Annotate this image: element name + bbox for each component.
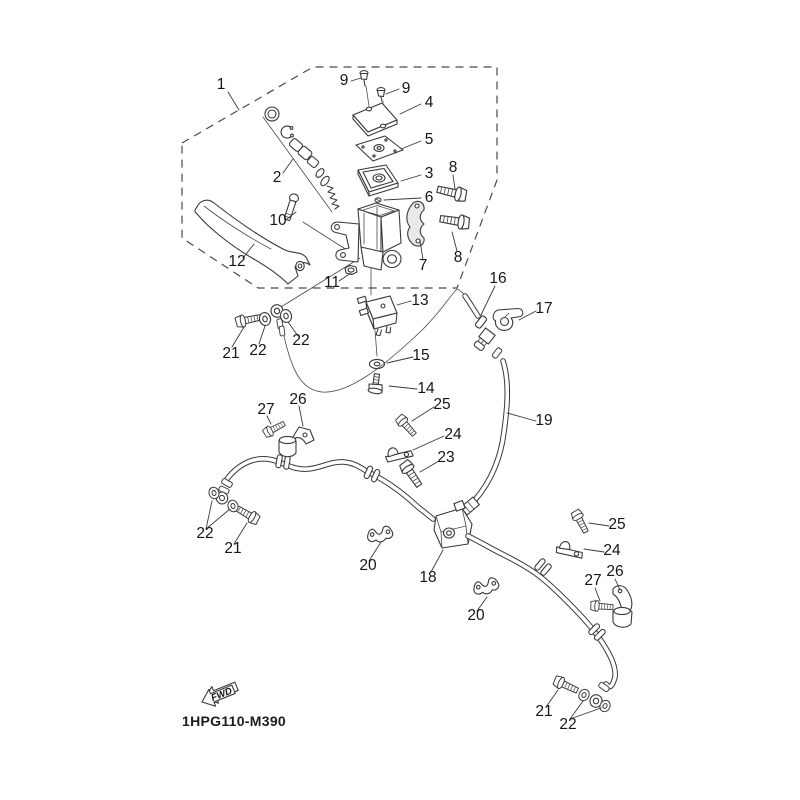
callout-10: 10 (269, 212, 287, 229)
callout-22b: 22 (292, 332, 309, 349)
part-7-handlebar-clamp (407, 201, 424, 246)
part-21-union-bolt-a (235, 311, 262, 328)
part-3-diaphragm (358, 165, 398, 196)
callout-21c: 21 (535, 703, 552, 720)
part-13-brake-switch (357, 296, 397, 336)
part-19-brake-pipe (461, 361, 508, 515)
master-cylinder-body (331, 203, 401, 270)
part-8-bolt-a (436, 182, 468, 203)
part-20-hose-clamp-a (366, 525, 394, 544)
callout-8b: 8 (454, 249, 463, 266)
callout-4: 4 (425, 94, 434, 111)
part-17-pipe-clip (493, 309, 523, 331)
callout-20b: 20 (467, 607, 485, 624)
callout-14: 14 (417, 380, 435, 397)
callout-23: 23 (437, 449, 454, 466)
callout-1: 1 (217, 76, 226, 93)
callout-22d: 22 (559, 716, 576, 733)
callout-20a: 20 (359, 557, 377, 574)
callout-7: 7 (419, 257, 428, 274)
part-27-bolt-b (590, 600, 613, 612)
callout-21b: 21 (224, 540, 241, 557)
callout-11: 11 (324, 274, 340, 291)
callout-25b: 25 (608, 516, 625, 533)
callout-19: 19 (535, 412, 552, 429)
callout-2: 2 (273, 169, 282, 186)
callout-24b: 24 (603, 542, 621, 559)
part-5-diaphragm-plate (356, 136, 403, 161)
leader-lines (206, 78, 620, 719)
callout-labels: 1 9 9 4 5 3 8 6 2 10 12 7 8 11 13 16 17 … (196, 72, 625, 733)
part-25-bolt-b (570, 508, 591, 534)
part-23-bolt (398, 459, 425, 490)
fwd-arrow-icon: FWD (199, 678, 240, 710)
callout-5: 5 (425, 131, 434, 148)
part-20-hose-clamp-b (472, 577, 500, 597)
callout-9a: 9 (340, 72, 349, 89)
callout-17: 17 (535, 300, 552, 317)
part-26-hose-holder-a (279, 427, 314, 457)
callout-22a: 22 (249, 342, 266, 359)
callout-9b: 9 (402, 80, 411, 97)
part-9-screw-b (377, 88, 385, 101)
callout-16: 16 (489, 270, 506, 287)
callout-13: 13 (411, 292, 428, 309)
part-8-bolt-b (439, 212, 470, 231)
callout-27b: 27 (584, 572, 601, 589)
part-26-hose-holder-b (613, 586, 632, 627)
diagram-code: 1HPG110-M390 (182, 713, 286, 729)
fwd-arrow-label: FWD (210, 686, 234, 704)
callout-6: 6 (425, 189, 434, 206)
part-22-washer-a (258, 311, 272, 326)
part-22-washer-e (577, 687, 591, 702)
callout-15: 15 (412, 347, 429, 364)
callout-12: 12 (228, 253, 245, 270)
part-4-reservoir-cap (353, 103, 397, 136)
part-15-washer (370, 359, 385, 368)
lower-brake-hose (215, 454, 433, 519)
callout-3: 3 (425, 165, 434, 182)
part-2-piston-kit (265, 107, 339, 209)
callout-22c: 22 (196, 525, 213, 542)
callout-26a: 26 (289, 391, 306, 408)
callout-18: 18 (419, 569, 436, 586)
part-24-pipe-clamp-b (555, 539, 585, 560)
callout-24a: 24 (444, 426, 462, 443)
callout-26b: 26 (606, 563, 623, 580)
callout-27a: 27 (257, 401, 274, 418)
lower-brake-hose-to-caliper (468, 536, 615, 709)
part-24-pipe-clamp-a (384, 445, 413, 462)
callout-25a: 25 (433, 396, 450, 413)
part-6-screw (375, 198, 381, 202)
callout-8a: 8 (449, 159, 458, 176)
part-25-bolt-a (394, 413, 419, 438)
parts-diagram-front-master-cylinder: 1 9 9 4 5 3 8 6 2 10 12 7 8 11 13 16 17 … (0, 0, 800, 800)
part-14-flange-bolt (368, 373, 385, 394)
callout-21a: 21 (222, 345, 239, 362)
part-27-bolt-a (262, 419, 287, 439)
